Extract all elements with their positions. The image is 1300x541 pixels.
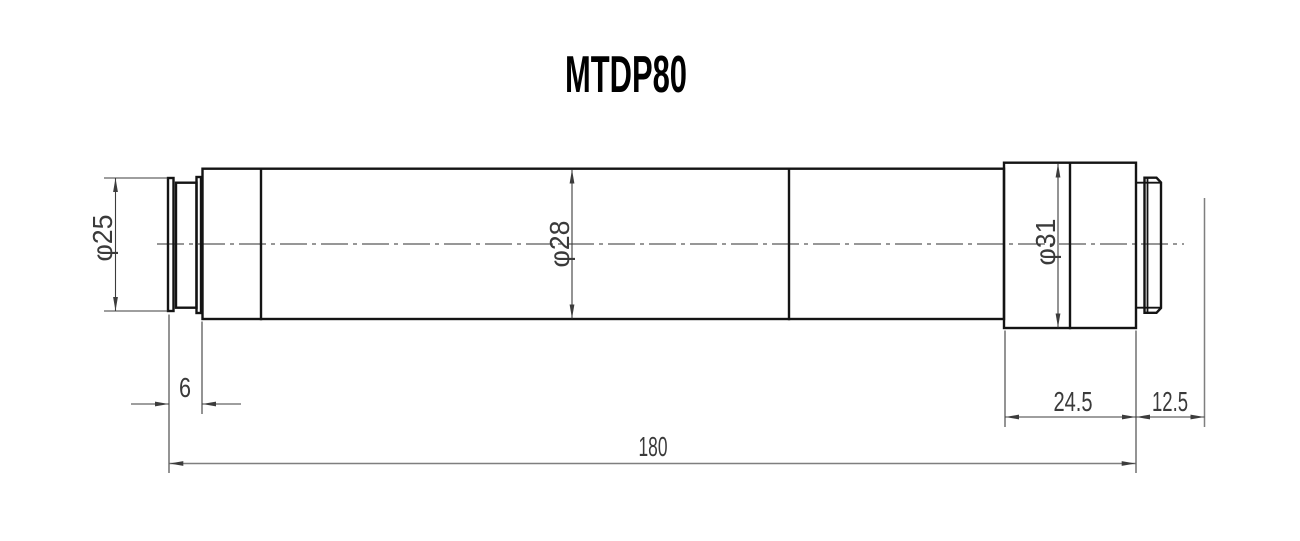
dimension-label-body-diameter: φ28 [544, 221, 575, 268]
front-groove-outline [176, 183, 197, 308]
dimension-label-rear-block-length: 24.5 [1054, 386, 1093, 417]
dimension-label-overall-length: 180 [639, 431, 668, 462]
dimension-label-rear-diameter: φ31 [1030, 219, 1061, 266]
dimension-body-diameter: φ28 [544, 170, 575, 319]
technical-drawing-page: MTDP80 φ25 φ28 [0, 0, 1300, 541]
dimension-label-rear-end-length: 12.5 [1152, 386, 1188, 417]
front-collar-outline [197, 177, 202, 313]
dimension-label-front-diameter: φ25 [87, 215, 118, 262]
lens-body-outline [168, 163, 1161, 328]
lens-drawing-canvas: MTDP80 φ25 φ28 [0, 0, 1300, 541]
dimension-label-front-length: 6 [179, 372, 191, 403]
dimension-front-diameter: φ25 [87, 178, 168, 311]
dimension-rear-diameter: φ31 [1030, 164, 1061, 328]
dimension-rear-block-length: 24.5 [1005, 331, 1136, 474]
drawing-title: MTDP80 [565, 46, 687, 104]
dimension-overall-length: 180 [169, 431, 1135, 464]
dimension-front-length: 6 [131, 315, 241, 474]
